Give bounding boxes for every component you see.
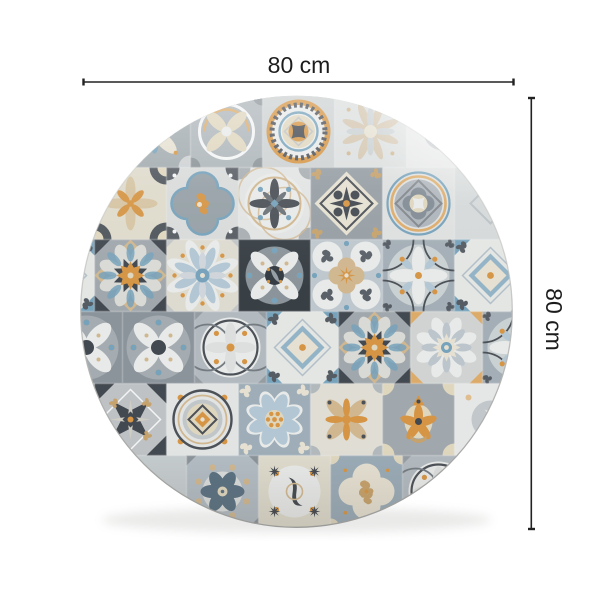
svg-text:80 cm: 80 cm bbox=[268, 52, 331, 78]
svg-text:80 cm: 80 cm bbox=[541, 288, 567, 351]
